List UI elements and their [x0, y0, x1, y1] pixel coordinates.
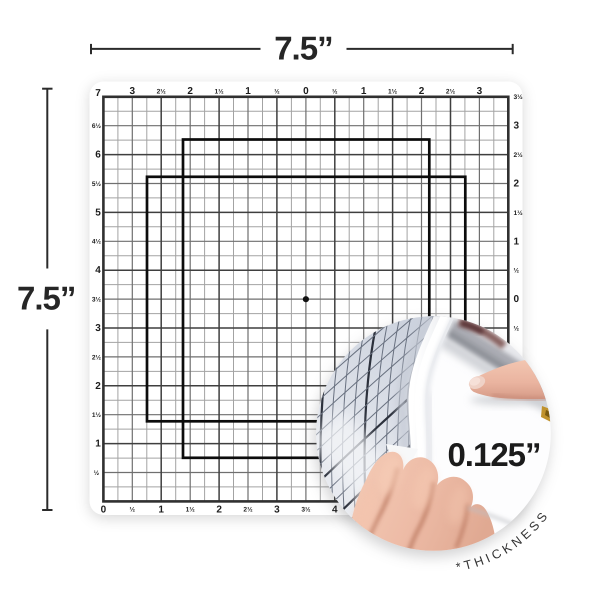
svg-text:7.5”: 7.5” — [274, 29, 332, 66]
svg-text:3½: 3½ — [301, 507, 311, 514]
svg-text:1: 1 — [245, 86, 251, 97]
svg-text:2½: 2½ — [243, 507, 253, 514]
svg-text:2: 2 — [419, 86, 425, 97]
svg-text:3: 3 — [95, 323, 101, 334]
svg-text:3: 3 — [130, 86, 136, 97]
svg-text:2½: 2½ — [92, 354, 102, 361]
svg-text:1: 1 — [361, 86, 367, 97]
svg-text:0: 0 — [101, 504, 107, 515]
svg-text:2½: 2½ — [446, 89, 456, 96]
svg-text:½: ½ — [94, 470, 100, 477]
svg-text:3½: 3½ — [92, 297, 102, 304]
svg-text:1½: 1½ — [92, 412, 102, 419]
svg-text:2: 2 — [216, 504, 222, 515]
svg-text:0: 0 — [514, 294, 520, 305]
svg-text:3: 3 — [274, 504, 280, 515]
svg-text:3: 3 — [514, 121, 520, 132]
svg-text:4: 4 — [95, 265, 101, 276]
svg-text:7.5”: 7.5” — [17, 279, 75, 316]
svg-text:5: 5 — [95, 207, 101, 218]
svg-text:0.125”: 0.125” — [447, 436, 540, 473]
svg-text:1½: 1½ — [514, 210, 524, 217]
svg-text:2½: 2½ — [514, 152, 524, 159]
svg-text:6: 6 — [95, 150, 101, 161]
svg-text:½: ½ — [274, 89, 280, 96]
svg-text:1: 1 — [514, 236, 520, 247]
svg-text:½: ½ — [514, 268, 520, 275]
svg-text:1½: 1½ — [186, 507, 196, 514]
svg-text:½: ½ — [514, 325, 520, 332]
svg-text:4: 4 — [332, 504, 338, 515]
svg-text:2: 2 — [187, 86, 193, 97]
svg-text:1½: 1½ — [215, 89, 225, 96]
svg-text:0: 0 — [303, 86, 309, 97]
svg-text:1½: 1½ — [388, 89, 398, 96]
svg-text:7: 7 — [95, 88, 101, 99]
svg-text:½: ½ — [130, 507, 136, 514]
svg-text:3: 3 — [477, 86, 483, 97]
svg-text:1: 1 — [158, 504, 164, 515]
svg-text:½: ½ — [332, 89, 338, 96]
svg-text:3½: 3½ — [514, 94, 524, 101]
svg-text:2½: 2½ — [157, 89, 167, 96]
svg-text:1: 1 — [95, 439, 101, 450]
svg-text:2: 2 — [95, 381, 101, 392]
svg-text:2: 2 — [514, 179, 520, 190]
svg-text:4½: 4½ — [92, 239, 102, 246]
svg-text:6½: 6½ — [92, 123, 102, 130]
svg-text:5½: 5½ — [92, 181, 102, 188]
